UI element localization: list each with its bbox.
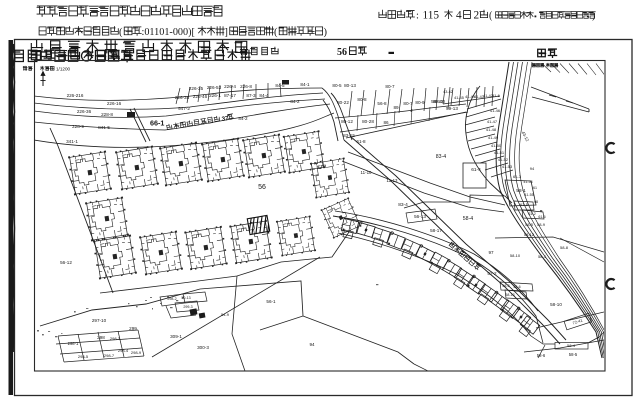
svg-text:41-46: 41-46 [490,108,501,113]
svg-text:80-8: 80-8 [357,97,367,102]
svg-text:61-3: 61-3 [513,174,522,179]
svg-text:947-2: 947-2 [178,106,190,111]
svg-text:41-49: 41-49 [488,135,499,140]
svg-text:300-3: 300-3 [197,345,209,350]
svg-text::: : [416,11,419,22]
svg-text:84-1: 84-1 [300,82,310,87]
svg-text:228-8: 228-8 [101,112,113,117]
svg-text:]: ] [225,27,228,38]
svg-text:80-13: 80-13 [344,83,356,88]
svg-text:58-4: 58-4 [463,216,473,222]
svg-text:94: 94 [309,342,315,347]
svg-text:226-46: 226-46 [193,94,208,99]
svg-text:(: ( [119,27,123,38]
svg-text:298: 298 [97,335,105,340]
svg-text:41-45: 41-45 [454,96,464,100]
svg-text::01101-000)[: :01101-000)[ [142,27,196,38]
svg-text:83-4: 83-4 [398,202,408,208]
svg-text:56-12: 56-12 [60,260,72,265]
svg-text:298-1: 298-1 [68,341,79,346]
svg-text:98: 98 [534,200,538,204]
svg-text:87-3: 87-3 [246,93,256,98]
svg-text:61-5: 61-5 [520,202,529,207]
svg-text:(: ( [274,27,278,38]
svg-text:84-2: 84-2 [238,116,248,121]
svg-text:41-53: 41-53 [502,164,513,169]
svg-text:84-4: 84-4 [259,93,269,98]
svg-text:341-1: 341-1 [66,139,78,144]
svg-text:56-8: 56-8 [377,101,387,106]
svg-text:80-22: 80-22 [337,100,349,105]
svg-text:226-216: 226-216 [67,93,84,98]
svg-text:309-1: 309-1 [170,334,182,339]
svg-text:54-9: 54-9 [221,312,230,317]
svg-text:2: 2 [474,10,480,22]
svg-text:58-10: 58-10 [510,253,521,258]
svg-text:226-35: 226-35 [189,86,204,91]
svg-text:61-8: 61-8 [356,139,366,144]
svg-text:80-9: 80-9 [415,100,425,105]
svg-text:841-5: 841-5 [98,125,110,130]
svg-text:): ) [592,10,595,21]
svg-text:56: 56 [258,184,266,191]
svg-text:59-13: 59-13 [446,106,458,111]
svg-text:58-9: 58-9 [537,222,546,227]
svg-text:61-2: 61-2 [528,212,536,216]
svg-text:56-13: 56-13 [414,214,426,219]
svg-text:41-48: 41-48 [486,127,497,132]
svg-text:61-6: 61-6 [538,215,545,219]
svg-text:226-53: 226-53 [207,85,222,90]
svg-text:226-1: 226-1 [209,93,221,98]
svg-text:41-6: 41-6 [492,94,500,98]
svg-text:94: 94 [530,166,535,171]
svg-text:298-5: 298-5 [78,354,89,359]
svg-text:84-2: 84-2 [290,99,300,104]
svg-text:97: 97 [488,250,494,255]
svg-text:299: 299 [129,326,137,331]
svg-text:58-13: 58-13 [505,293,514,297]
svg-text:66-1: 66-1 [150,119,164,128]
svg-text:41-54: 41-54 [523,180,532,184]
svg-text:58-5: 58-5 [525,222,534,227]
svg-text:298-7: 298-7 [104,353,115,358]
svg-text:41-55: 41-55 [524,193,533,197]
svg-text:4: 4 [456,10,462,22]
svg-text:58-10: 58-10 [550,302,562,307]
svg-text:226-8: 226-8 [240,84,252,89]
svg-text:80-5: 80-5 [332,83,342,88]
svg-text:61-4: 61-4 [471,167,481,173]
svg-text:58-10: 58-10 [431,99,443,104]
svg-text:299-3: 299-3 [183,305,192,309]
svg-text:58-3: 58-3 [502,284,509,288]
svg-text:86: 86 [383,120,389,125]
svg-text:83-4: 83-4 [436,154,446,160]
svg-text:58-6: 58-6 [513,285,520,289]
svg-text:57-2: 57-2 [487,271,497,276]
svg-text:58-12: 58-12 [524,232,535,237]
svg-text:80-7: 80-7 [385,84,395,89]
svg-text:80-7: 80-7 [403,101,413,106]
svg-text:11-10: 11-10 [361,170,372,175]
svg-text:): ) [324,27,328,38]
svg-text:80-12: 80-12 [341,119,353,124]
svg-text:61: 61 [533,186,537,190]
svg-text:226-16: 226-16 [107,101,122,106]
svg-text:84-5: 84-5 [275,83,285,88]
svg-text:298-9: 298-9 [131,350,142,355]
svg-text:298-4: 298-4 [118,348,129,353]
svg-text:58-4: 58-4 [538,254,547,259]
svg-text:228-9: 228-9 [72,124,84,129]
svg-text:226-36: 226-36 [77,109,92,114]
svg-text:58-17: 58-17 [430,228,442,233]
svg-text:11-13: 11-13 [387,178,398,183]
svg-text:41-52: 41-52 [498,157,509,162]
svg-text:58-6: 58-6 [537,353,546,358]
svg-text:56-1: 56-1 [266,299,276,304]
svg-text:80-28: 80-28 [362,119,374,124]
svg-text:115: 115 [423,10,440,22]
svg-text:43-42: 43-42 [443,90,453,94]
svg-text:41-50: 41-50 [491,143,502,148]
svg-text:89: 89 [393,105,399,110]
svg-text:226-4: 226-4 [224,84,236,89]
svg-text:298-3: 298-3 [110,336,121,341]
svg-text:226-38: 226-38 [175,95,190,100]
svg-text:58-5: 58-5 [569,352,578,357]
svg-text:83-15: 83-15 [343,133,355,138]
svg-text:58-4: 58-4 [567,343,576,348]
svg-text:58-8: 58-8 [560,245,569,250]
svg-text:298-2: 298-2 [167,297,176,301]
svg-text:56: 56 [337,47,347,58]
svg-text:87-17: 87-17 [224,93,236,98]
svg-text:1/1200: 1/1200 [56,67,70,72]
svg-text:297-10: 297-10 [92,318,107,323]
svg-text:41-51: 41-51 [494,150,505,155]
svg-text:41-47: 41-47 [487,119,498,124]
